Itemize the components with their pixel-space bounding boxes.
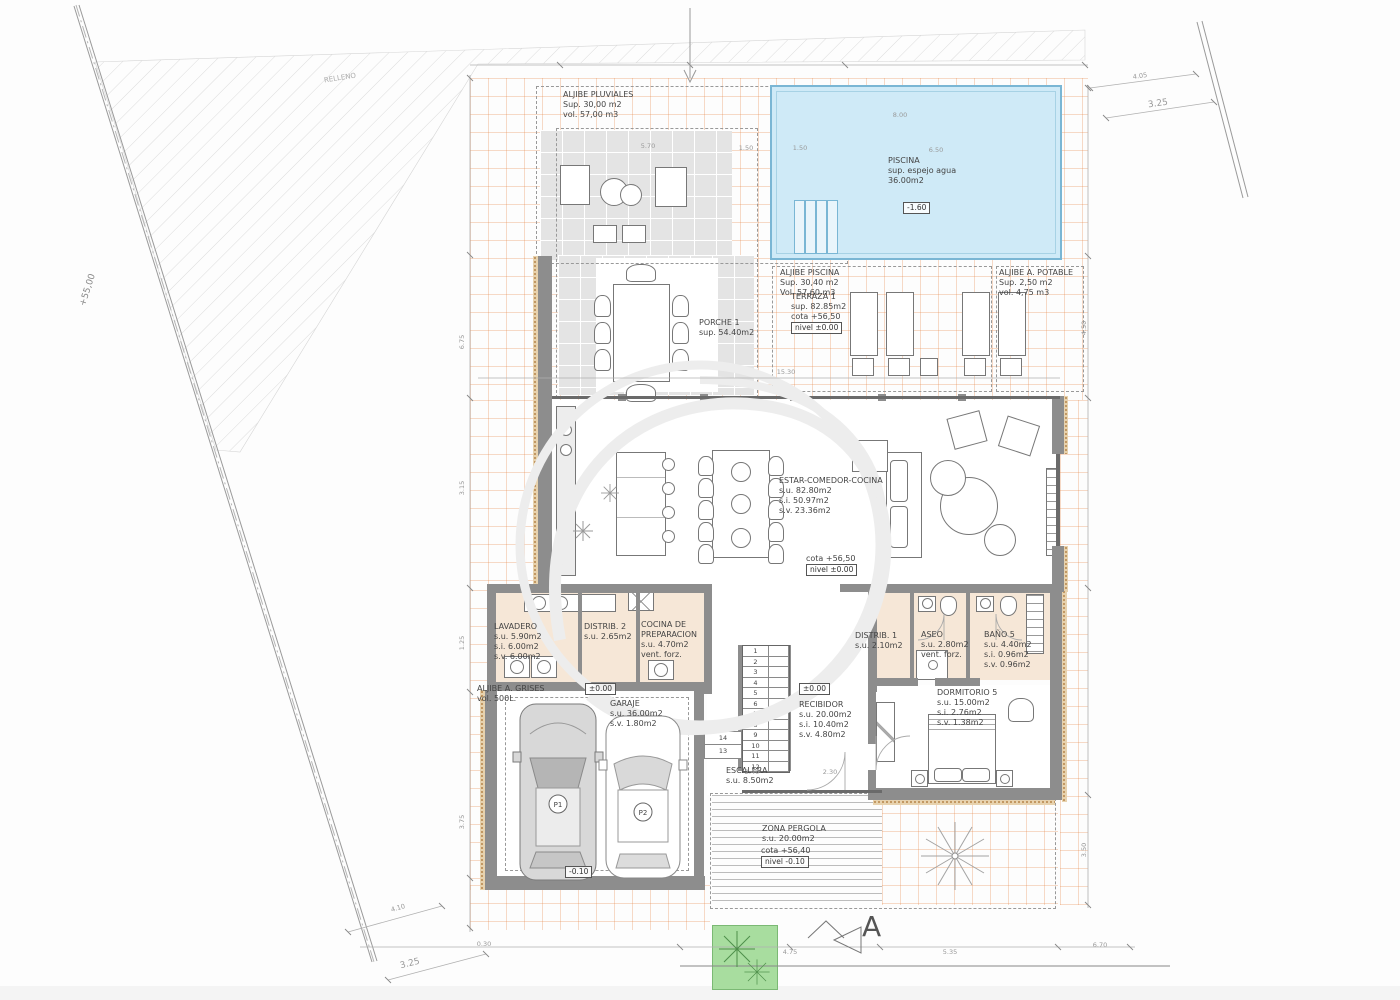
room-name: BAÑO 5: [984, 630, 1032, 640]
lounge-ottoman: [593, 225, 617, 243]
room-area: s.v. 4.80m2: [799, 730, 852, 740]
stair-step: [769, 646, 789, 657]
sofa-chaise: [852, 440, 888, 472]
hall-floor: [707, 590, 875, 795]
wall-insulation: [873, 800, 1055, 805]
porch-chair: [626, 384, 656, 402]
room-cota: cota +56,40: [761, 846, 810, 856]
room-name: DORMITORIO 5: [937, 688, 997, 698]
bed-pillow: [962, 768, 990, 782]
room-area: sup. 82.85m2: [791, 302, 846, 312]
room-name: PORCHE 1: [699, 318, 754, 328]
bedroom-north-wall-a: [868, 678, 918, 686]
relleno-label: RELLENO: [323, 72, 356, 85]
dimension: 2.30: [823, 768, 837, 776]
site-level-label: +55,00: [78, 273, 98, 308]
floor-plan: 1 2 3 4 5 6 7 8 9 10 11 12 14 13: [0, 0, 1400, 1000]
aseo-sink: [922, 598, 933, 609]
kitchen-sink: [560, 444, 572, 456]
bedroom-north-wall-b: [935, 678, 980, 686]
label-piscina: PISCINA sup. espejo agua 36.00m2: [888, 156, 956, 186]
room-area: s.u. 2.65m2: [584, 632, 632, 642]
bath5-sink: [980, 598, 991, 609]
sun-lounger-foot: [964, 358, 986, 376]
dimension: 6.75: [458, 335, 466, 349]
label-aljibe-potable: ALJIBE A. POTABLE Sup. 2,50 m2 vol. 4,75…: [999, 268, 1073, 298]
room-name: ASEO: [921, 630, 969, 640]
stair-step: [769, 657, 789, 668]
aseo-toilet: [940, 596, 957, 616]
room-name: ALJIBE PLUVIALES: [563, 90, 633, 100]
room-note: sup. espejo agua: [888, 166, 956, 176]
stair-step-number: 9: [743, 730, 769, 741]
room-area: s.u. 5.90m2: [494, 632, 542, 642]
stair-step: [769, 667, 789, 678]
label-estar-cota: cota +56,50 nivel ±0.00: [806, 554, 857, 576]
room-area: s.i. 50.97m2: [779, 496, 883, 506]
page-edge: [0, 986, 1400, 1000]
stair-step-number: 8: [743, 720, 769, 731]
dimension: 1.25: [458, 636, 466, 650]
stair-step: [769, 751, 789, 762]
bath5-toilet: [1000, 596, 1017, 616]
bed-pillow: [934, 768, 962, 782]
garage-level-top-box: ±0.00: [585, 683, 616, 695]
room-area: s.u. 8.50m2: [726, 776, 774, 786]
room-area: s.i. 0.96m2: [984, 650, 1032, 660]
terrace-paving-left: [470, 400, 542, 590]
dining-chair: [698, 522, 714, 542]
stair-step: [769, 730, 789, 741]
lounger-side-table: [920, 358, 938, 376]
dryer: [554, 596, 568, 610]
porch-dining-table: [613, 284, 670, 382]
label-aseo: ASEO s.u. 2.80m2 vent. forz.: [921, 630, 969, 660]
room-area: s.v. 0.96m2: [984, 660, 1032, 670]
dimension: 8.00: [893, 111, 907, 119]
label-estar: ESTAR-COMEDOR-COCINA s.u. 82.80m2 s.i. 5…: [779, 476, 883, 516]
vent-shaft: [628, 592, 654, 611]
rightblock-top-wall: [868, 584, 1060, 593]
nightstand-lamp: [915, 774, 925, 784]
room-name: PREPARACION: [641, 630, 697, 640]
dining-chair: [768, 544, 784, 564]
pool-step: [805, 200, 816, 254]
pergola-level-box: nivel -0.10: [761, 856, 809, 868]
pool-step: [794, 200, 805, 254]
dining-chair: [698, 544, 714, 564]
label-terraza1: TERRAZA 1 sup. 82.85m2 cota +56,50 nivel…: [791, 292, 846, 334]
stair-step: [769, 709, 789, 720]
lounge-ottoman: [622, 225, 646, 243]
room-name: LAVADERO: [494, 622, 542, 632]
room-area: s.u. 4.70m2: [641, 640, 697, 650]
island-stool: [662, 458, 675, 471]
kitchen-island: [616, 452, 666, 556]
porch-chair: [672, 295, 689, 317]
wall-east-bedroom: [1050, 584, 1062, 800]
dimension: 2.40: [745, 768, 759, 776]
room-volume: vol. 4,75 m3: [999, 288, 1073, 298]
stair-step: [769, 699, 789, 710]
sofa-cushion: [890, 506, 908, 548]
dimension: 3.50: [1080, 843, 1088, 857]
lounge-armchair: [560, 165, 590, 205]
room-area: s.v. 6.00m2: [494, 652, 542, 662]
dimension: 3.25: [1147, 98, 1168, 111]
dimension: 5.70: [641, 142, 655, 150]
pool-step: [816, 200, 827, 254]
table-plate: [731, 528, 751, 548]
wall-insulation: [1064, 546, 1068, 592]
washer: [532, 596, 546, 610]
dining-chair: [698, 478, 714, 498]
dining-chair: [698, 456, 714, 476]
room-area: s.i. 6.00m2: [494, 642, 542, 652]
driveway-paving: [470, 885, 710, 930]
label-distrib1: DISTRIB. 1 s.u. 2.10m2: [855, 631, 903, 651]
partition-aseo: [910, 593, 914, 682]
prep-kitchen-sink: [654, 663, 668, 677]
room-name: RECIBIDOR: [799, 700, 852, 710]
room-name: ALJIBE A. POTABLE: [999, 268, 1073, 278]
room-cota: cota +56,50: [791, 312, 846, 322]
garage-south-wall: [485, 876, 705, 890]
label-bano5: BAÑO 5 s.u. 4.40m2 s.i. 0.96m2 s.v. 0.96…: [984, 630, 1032, 670]
room-area: s.v. 1.80m2: [610, 719, 663, 729]
label-recibidor: RECIBIDOR s.u. 20.00m2 s.i. 10.40m2 s.v.…: [799, 700, 852, 740]
sun-lounger-foot: [852, 358, 874, 376]
room-note: vent. forz.: [641, 650, 697, 660]
porch-chair: [594, 349, 611, 371]
laundry-sink: [537, 660, 551, 674]
porch-chair: [594, 322, 611, 344]
nightstand-lamp: [1000, 774, 1010, 784]
room-name: GARAJE: [610, 699, 663, 709]
label-aljibe-grises: ALJIBE A. GRISES vol. 500L.: [477, 684, 544, 704]
stair-step: [769, 720, 789, 731]
label-aljibe-pluviales: ALJIBE PLUVIALES Sup. 30,00 m2 vol. 57,0…: [563, 90, 633, 120]
wardrobe: [876, 702, 895, 762]
section-letter: A: [862, 910, 881, 943]
sofa-cushion: [890, 460, 908, 502]
stair-step: [769, 688, 789, 699]
bedroom-south-wall: [868, 788, 1060, 800]
dimension: 3.75: [458, 815, 466, 829]
north-reference-arrow: [684, 8, 696, 82]
dimension: 3.25: [399, 957, 421, 972]
dining-chair: [768, 456, 784, 476]
glazing-north: [552, 396, 1060, 399]
pool-step: [827, 200, 838, 254]
coffee-table-small: [930, 460, 966, 496]
room-area: Sup. 30,00 m2: [563, 100, 633, 110]
room-area: s.v. 23.36m2: [779, 506, 883, 516]
room-name: ALJIBE A. GRISES: [477, 684, 544, 694]
table-plate: [731, 462, 751, 482]
room-area: s.u. 2.80m2: [921, 640, 969, 650]
island-stool: [662, 506, 675, 519]
label-pergola-cota: cota +56,40 nivel -0.10: [761, 846, 810, 868]
coffee-table-small: [984, 524, 1016, 556]
staircase: 1 2 3 4 5 6 7 8 9 10 11 12: [742, 645, 790, 773]
room-volume: vol. 57,00 m3: [563, 110, 633, 120]
garage-level-bottom-box: -0.10: [565, 866, 592, 878]
room-area: 36.00m2: [888, 176, 956, 186]
planter-square: [712, 925, 778, 990]
lounge-table: [620, 184, 642, 206]
room-area: s.u. 20.00m2: [762, 834, 826, 844]
dimension: 4.05: [1132, 71, 1147, 81]
hall-south-glazing: [742, 790, 882, 793]
dimension: 6.70: [1093, 941, 1107, 949]
room-area: sup. 54.40m2: [699, 328, 754, 338]
dimension: 4.50: [1080, 321, 1088, 335]
wetblock-top-wall: [487, 584, 712, 593]
stair-step-number: 3: [743, 667, 769, 678]
garage-west-wall: [485, 690, 497, 890]
dimension: 3.15: [458, 481, 466, 495]
room-area: s.u. 15.00m2: [937, 698, 997, 708]
sun-lounger-foot: [1000, 358, 1022, 376]
plot-boundary-west: [74, 5, 377, 962]
dimension: 1.50: [739, 144, 753, 152]
dimension: 4.75: [783, 948, 797, 956]
lounge-armchair: [655, 167, 687, 207]
island-stool: [662, 530, 675, 543]
dimension: 1.50: [793, 144, 807, 152]
pool-depth-box: -1.60: [903, 202, 930, 214]
room-area: s.u. 20.00m2: [799, 710, 852, 720]
stair-west-wall: [704, 584, 712, 694]
room-area: s.v. 1.38m2: [937, 718, 997, 728]
dimension: 4.10: [390, 902, 406, 914]
porch-chair: [626, 264, 656, 282]
garage-east-wall: [694, 690, 704, 880]
stair-step: [769, 741, 789, 752]
plot-boundary-east: [1197, 21, 1248, 198]
wall-insulation: [1064, 396, 1068, 454]
room-name: ALJIBE PISCINA: [780, 268, 839, 278]
dimension: 6.50: [929, 146, 943, 154]
stair-step-number: 11: [743, 751, 769, 762]
partition-laundry: [578, 593, 582, 682]
room-area: s.i. 10.40m2: [799, 720, 852, 730]
label-porche1: PORCHE 1 sup. 54.40m2: [699, 318, 754, 338]
stair-step-number: 2: [743, 657, 769, 668]
room-area: Sup. 2,50 m2: [999, 278, 1073, 288]
room-area: s.i. 2.76m2: [937, 708, 997, 718]
stair-step-number: 4: [743, 678, 769, 689]
room-area: Sup. 30,40 m2: [780, 278, 839, 288]
bedroom-west-wall: [868, 686, 876, 744]
laundry-sink: [510, 660, 524, 674]
table-plate: [731, 494, 751, 514]
room-cota: cota +56,50: [806, 554, 857, 564]
porch-chair: [672, 322, 689, 344]
stair-step-number: 5: [743, 688, 769, 699]
room-name: DISTRIB. 1: [855, 631, 903, 641]
sun-lounger: [850, 292, 878, 356]
partition-prep-kitchen: [636, 593, 640, 682]
window-east: [1056, 454, 1060, 546]
stair-step-extra: 13: [704, 744, 742, 759]
porch-chair: [594, 295, 611, 317]
room-name: TERRAZA 1: [791, 292, 846, 302]
wall-west: [538, 256, 552, 592]
dimension: 0.30: [477, 940, 491, 948]
sun-lounger: [998, 292, 1026, 356]
kitchen-sink: [560, 424, 572, 436]
room-name: ESTAR-COMEDOR-COCINA: [779, 476, 883, 486]
stair-step-number: 10: [743, 741, 769, 752]
dining-chair: [768, 522, 784, 542]
sun-lounger: [962, 292, 990, 356]
dimension: 5.35: [943, 948, 957, 956]
hall-level-box: ±0.00: [799, 683, 830, 695]
room-name: ZONA PERGOLA: [762, 824, 826, 834]
terraza1-level-box: nivel ±0.00: [791, 322, 842, 334]
stair-step-number: 7: [743, 709, 769, 720]
wall-insulation: [1062, 590, 1067, 802]
porch-chair: [672, 349, 689, 371]
room-name: DISTRIB. 2: [584, 622, 632, 632]
dimension: 15.30: [777, 368, 796, 376]
label-dormitorio5: DORMITORIO 5 s.u. 15.00m2 s.i. 2.76m2 s.…: [937, 688, 997, 728]
room-area: s.u. 36.00m2: [610, 709, 663, 719]
stair-step: [769, 678, 789, 689]
wall-east-upper: [1052, 396, 1064, 454]
stair-step-number: 6: [743, 699, 769, 710]
room-note: vent. forz.: [921, 650, 969, 660]
room-area: s.u. 4.40m2: [984, 640, 1032, 650]
estar-level-box: nivel ±0.00: [806, 564, 857, 576]
label-garaje: GARAJE s.u. 36.00m2 s.v. 1.80m2: [610, 699, 663, 729]
room-volume: vol. 500L.: [477, 694, 544, 704]
label-zona-pergola: ZONA PERGOLA s.u. 20.00m2: [762, 824, 826, 844]
aseo-shower-drain: [928, 660, 938, 670]
room-area: s.u. 82.80m2: [779, 486, 883, 496]
label-cocina-prep: COCINA DE PREPARACION s.u. 4.70m2 vent. …: [641, 620, 697, 660]
sun-lounger: [886, 292, 914, 356]
label-lavadero: LAVADERO s.u. 5.90m2 s.i. 6.00m2 s.v. 6.…: [494, 622, 542, 662]
stair-step-number: 1: [743, 646, 769, 657]
bedroom-armchair: [1008, 698, 1034, 722]
room-name: PISCINA: [888, 156, 956, 166]
dining-chair: [698, 500, 714, 520]
room-area: s.u. 2.10m2: [855, 641, 903, 651]
island-stool: [662, 482, 675, 495]
sun-lounger-foot: [888, 358, 910, 376]
label-distrib2: DISTRIB. 2 s.u. 2.65m2: [584, 622, 632, 642]
room-name: COCINA DE: [641, 620, 697, 630]
